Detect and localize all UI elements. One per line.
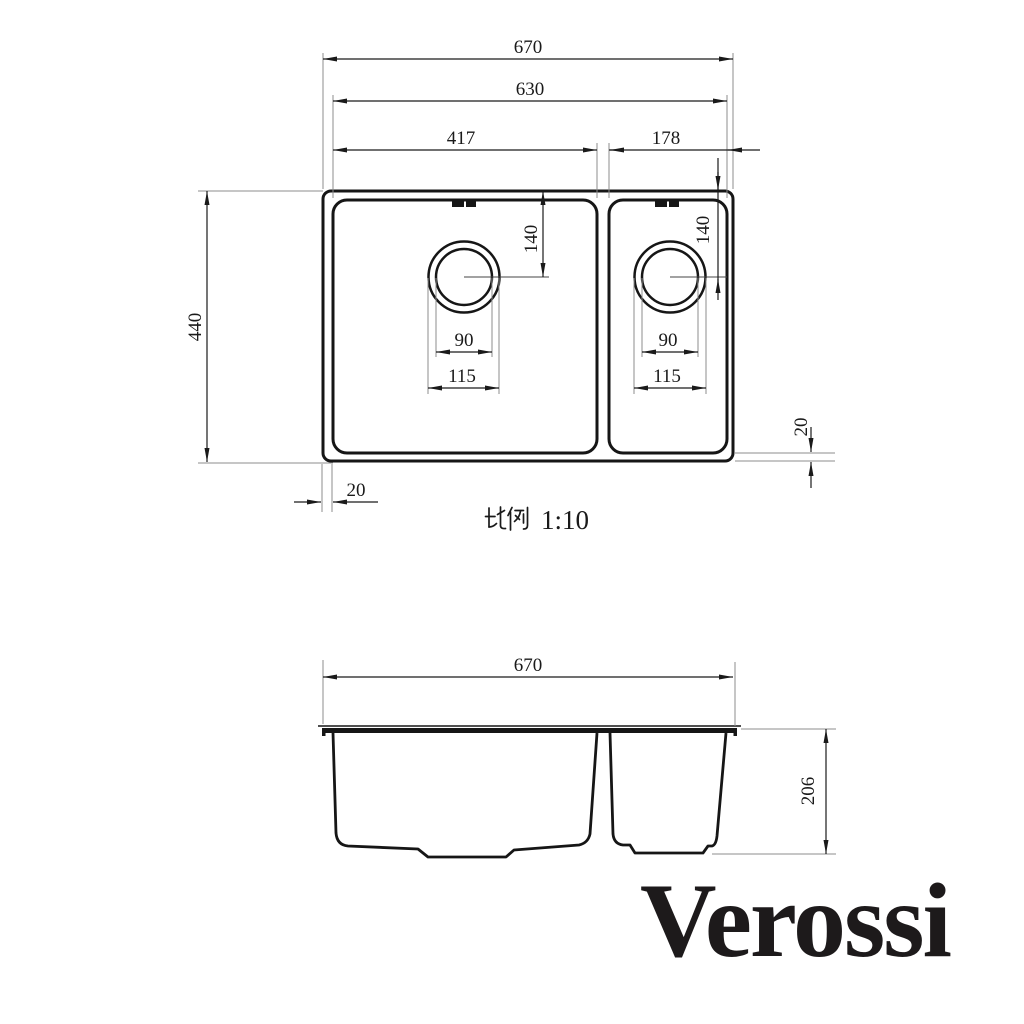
main-bowl-section [333,733,597,857]
dim-overall-depth-label: 440 [185,313,206,342]
dim-main-drain-offset-label: 140 [521,225,542,254]
scale-label: 比例 1:10 [486,505,590,535]
dim-second-drain-offset-label: 140 [693,216,714,245]
sink-section-outline [318,726,741,857]
dim-second-bowl-width-label: 178 [652,128,681,149]
dim-bottom-rim-label: 20 [791,418,812,437]
dim-overall-width: 670 [323,37,733,189]
scale-ratio: 1:10 [541,505,589,535]
dim-overall-depth: 440 [185,191,333,463]
side-view: 670 206 [318,655,836,857]
main-bowl [333,200,597,453]
dim-second-drain-inner-label: 90 [659,330,678,351]
sink-technical-drawing: 670 630 417 178 440 [0,0,1024,1024]
dim-main-drain-outer-label: 115 [448,366,476,387]
dim-second-drain-outer-label: 115 [653,366,681,387]
rim-lip-left [322,733,326,736]
second-bowl-overflow-mark [655,201,667,207]
second-bowl-section [610,733,726,853]
dim-bottom-rim: 20 [735,418,835,489]
dim-second-drain: 90 115 [634,278,706,394]
dim-main-drain: 90 115 [428,278,499,394]
sink-rim-plate [322,728,737,733]
top-view: 670 630 417 178 440 [185,37,835,512]
dim-overall-width-label: 670 [514,37,543,58]
dim-side-rim: 20 [294,464,378,512]
dim-depth: 206 [712,729,836,854]
rim-lip-right [734,733,738,736]
dim-main-drain-inner-label: 90 [455,330,474,351]
dim-side-overall-width: 670 [323,655,735,726]
dim-main-drain-offset: 140 [521,191,543,277]
dim-side-overall-width-label: 670 [514,655,543,676]
main-bowl-overflow-mark [466,201,476,207]
dim-bowl-widths: 417 178 [333,128,760,198]
dim-side-rim-label: 20 [347,480,366,501]
dim-main-bowl-width-label: 417 [447,128,476,149]
brand-logo: Verossi [640,862,951,979]
main-bowl-overflow-mark [452,201,464,207]
drawing-page: 670 630 417 178 440 [0,0,1024,1024]
dim-depth-label: 206 [798,777,819,806]
dim-inner-width-label: 630 [516,79,545,100]
second-bowl-overflow-mark [669,201,679,207]
